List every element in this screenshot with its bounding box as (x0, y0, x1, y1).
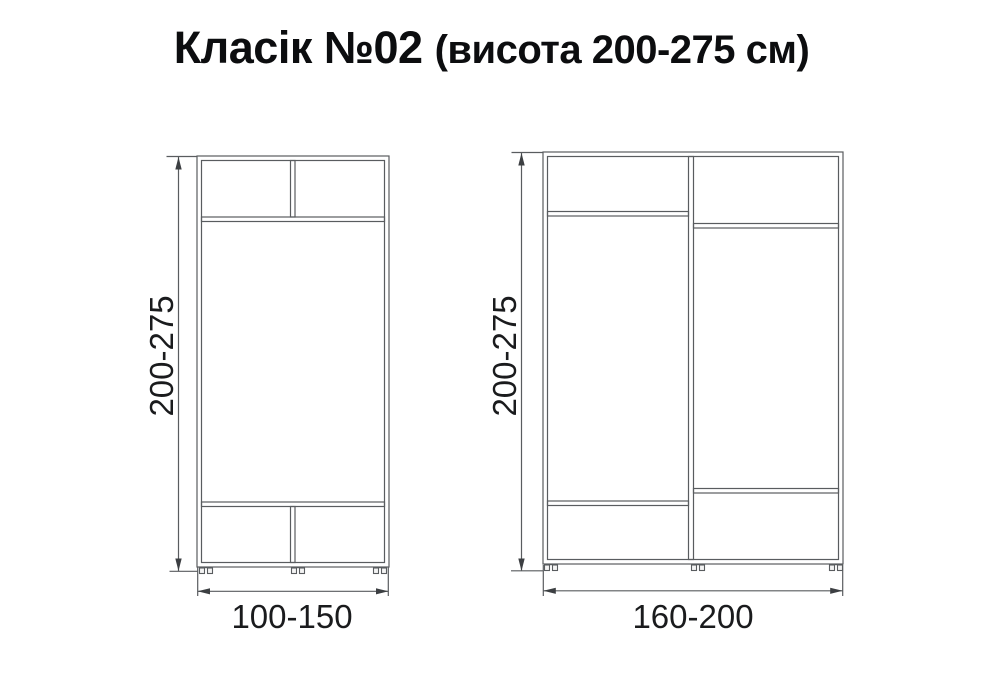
wardrobe-large-feet (544, 565, 843, 571)
wardrobe-small-height-dimension: 200-275 (143, 157, 198, 572)
wardrobe-large-height-label: 200-275 (486, 295, 523, 416)
wardrobe-large-height-dimension: 200-275 (486, 153, 544, 572)
wardrobe-small-width-label: 100-150 (231, 598, 352, 635)
wardrobe-large-width-label: 160-200 (632, 598, 753, 635)
wardrobe-small-feet (199, 568, 387, 574)
diagram-page: Класік №02 (висота 200-275 см) (0, 0, 983, 700)
wardrobe-large-width-dimension: 160-200 (543, 565, 842, 635)
wardrobe-small-body (197, 156, 389, 567)
wardrobe-large-drawing: 200-275 160-200 (486, 152, 843, 635)
wardrobe-diagrams-canvas: 200-275 100-150 (0, 0, 983, 700)
wardrobe-small-width-dimension: 100-150 (198, 568, 389, 636)
wardrobe-large-body (543, 152, 843, 564)
wardrobe-small-height-label: 200-275 (143, 295, 180, 416)
wardrobe-small-drawing: 200-275 100-150 (143, 156, 389, 635)
